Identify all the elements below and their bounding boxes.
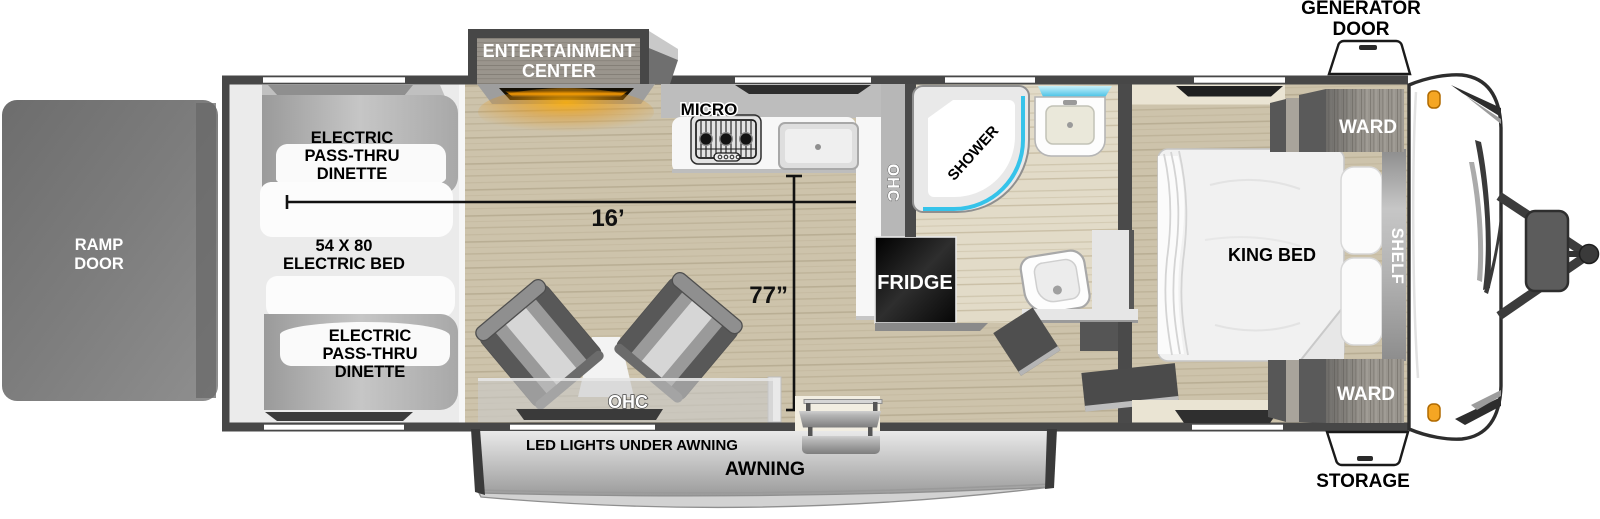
- svg-text:ELECTRIC: ELECTRIC: [311, 129, 394, 147]
- svg-text:ELECTRIC BED: ELECTRIC BED: [283, 255, 405, 273]
- svg-text:MICRO: MICRO: [681, 100, 738, 119]
- svg-text:KING BED: KING BED: [1228, 245, 1316, 265]
- svg-text:16’: 16’: [591, 205, 624, 232]
- svg-text:WARD: WARD: [1337, 384, 1395, 405]
- svg-text:ELECTRIC: ELECTRIC: [329, 327, 412, 345]
- svg-text:ENTERTAINMENT: ENTERTAINMENT: [483, 41, 636, 61]
- svg-text:54 X 80: 54 X 80: [316, 237, 373, 255]
- svg-text:OHC: OHC: [608, 392, 648, 412]
- svg-text:OHC: OHC: [884, 164, 901, 203]
- svg-text:DOOR: DOOR: [1333, 19, 1390, 40]
- svg-text:LED LIGHTS UNDER AWNING: LED LIGHTS UNDER AWNING: [526, 437, 738, 454]
- svg-text:PASS-THRU: PASS-THRU: [322, 345, 417, 363]
- svg-text:FRIDGE: FRIDGE: [877, 272, 953, 294]
- svg-text:DINETTE: DINETTE: [317, 165, 388, 183]
- svg-text:RAMP: RAMP: [75, 236, 124, 254]
- svg-text:STORAGE: STORAGE: [1316, 471, 1410, 492]
- svg-text:PASS-THRU: PASS-THRU: [304, 147, 399, 165]
- svg-text:77”: 77”: [749, 282, 788, 309]
- svg-text:GENERATOR: GENERATOR: [1301, 0, 1421, 19]
- svg-text:WARD: WARD: [1339, 117, 1397, 138]
- svg-text:SHELF: SHELF: [1388, 228, 1406, 285]
- svg-text:DINETTE: DINETTE: [335, 363, 406, 381]
- svg-text:CENTER: CENTER: [522, 61, 596, 81]
- svg-text:DOOR: DOOR: [74, 255, 124, 273]
- svg-text:AWNING: AWNING: [725, 458, 805, 480]
